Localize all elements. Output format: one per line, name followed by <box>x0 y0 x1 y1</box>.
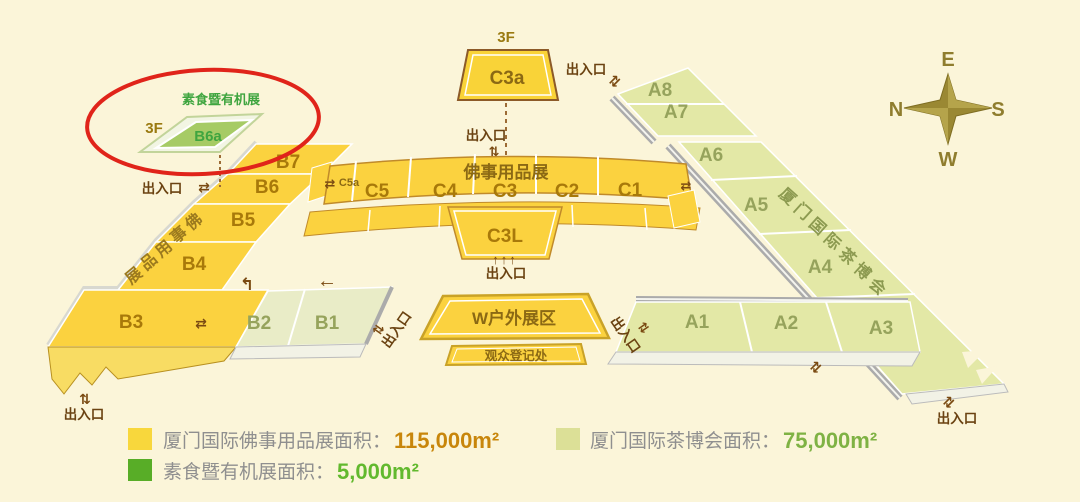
c-band-header: 佛事用品展 <box>463 162 549 182</box>
hall-label-b3: B3 <box>119 312 143 333</box>
hall-label-a3: A3 <box>869 318 893 339</box>
row-base-3d <box>608 352 920 366</box>
hall-label-b4: B4 <box>182 254 207 275</box>
legend: 厦门国际佛事用品展面积： 115,000m² 厦门国际茶博会面积： 75,000… <box>128 428 877 484</box>
legend-value-tea: 75,000m² <box>783 428 877 453</box>
tea-expo-bottom-row: A1 A2 A3 <box>608 299 920 366</box>
hall-label-b2: B2 <box>247 313 271 334</box>
hall-label-b1: B1 <box>315 313 340 334</box>
hall-label-b6: B6 <box>255 177 279 198</box>
exchange-arrows-icon: ⇄ <box>325 176 336 191</box>
left-arrow-icon: ← <box>317 270 337 292</box>
entrance-label-b6: 出入口 <box>142 180 183 196</box>
hall-label-a6: A6 <box>699 145 723 166</box>
strip-platform-3d <box>48 347 236 394</box>
turn-arrow-icon: ↰ <box>240 275 254 294</box>
hall-label-a4: A4 <box>808 257 833 278</box>
compass-south-label: S <box>991 99 1004 121</box>
exchange-arrows-icon: ⇄ <box>681 178 692 193</box>
hall-label-a7: A7 <box>664 102 688 123</box>
legend-value-buddhist: 115,000m² <box>394 428 499 453</box>
annex-base-3d <box>230 344 366 359</box>
legend-label-tea: 厦门国际茶博会面积： <box>590 430 780 452</box>
c3a-floor-label: 3F <box>497 29 515 46</box>
entrance-label-c3l: 出入口 <box>486 265 527 281</box>
compass-north-label: N <box>889 99 903 121</box>
legend-swatch-tea <box>556 428 580 450</box>
hall-label-a1: A1 <box>685 312 710 333</box>
apron-divider <box>572 205 573 227</box>
legend-label-buddhist: 厦门国际佛事用品展面积： <box>163 430 391 452</box>
legend-value-organic: 5,000m² <box>337 459 419 484</box>
compass-east-label: E <box>941 49 954 71</box>
venue-floorplan: A8 A7 A6 A5 A4 厦门国际茶博会 A1 A2 A3 B7 B6 B5… <box>0 0 1080 502</box>
hall-label-c4: C4 <box>433 181 458 202</box>
registration-label: 观众登记处 <box>485 348 548 363</box>
organic-expo-label: 素食暨有机展 <box>182 92 261 107</box>
hall-label-a8: A8 <box>648 80 672 101</box>
legend-swatch-buddhist <box>128 428 152 450</box>
c-complex: 佛事用品展 C5 C4 C3 C2 C1 C3L C5a <box>304 154 700 259</box>
diagonal-arrows-icon: ⇅ <box>605 71 625 91</box>
legend-swatch-organic <box>128 459 152 481</box>
exchange-arrows-icon: ⇄ <box>195 315 207 331</box>
exchange-arrows-icon: ⇄ <box>198 179 210 195</box>
updown-arrows-icon: ⇅ <box>79 391 91 407</box>
legend-label-organic: 素食暨有机展面积： <box>163 461 334 483</box>
hall-label-c5a: C5a <box>339 177 360 189</box>
outdoor-zone: W户外展区 观众登记处 <box>421 294 609 365</box>
hall-label-c3l: C3L <box>487 226 523 247</box>
hall-label-b6a: B6a <box>194 128 222 145</box>
apron-divider <box>439 206 440 228</box>
b6a-floor-label: 3F <box>145 120 163 137</box>
hall-label-b5: B5 <box>231 210 256 231</box>
entrance-label-a8: 出入口 <box>566 61 607 77</box>
hall-label-a2: A2 <box>774 313 798 334</box>
updown-arrows-icon: ⇅ <box>489 144 500 159</box>
triple-up-arrows-icon: ↑↑↑ <box>492 252 518 267</box>
compass-west-label: W <box>939 149 958 171</box>
hall-label-c1: C1 <box>618 180 643 201</box>
connector-c1-a6 <box>668 190 700 228</box>
compass-rose: E N S W <box>889 49 1005 171</box>
hall-label-c2: C2 <box>555 181 579 202</box>
entrance-label-b3: 出入口 <box>64 406 105 422</box>
entrance-label-c3a: 出入口 <box>466 127 507 143</box>
w-outdoor-label: W户外展区 <box>472 308 556 328</box>
entrance-label-a3: 出入口 <box>937 410 978 426</box>
hall-label-c3: C3 <box>493 181 517 202</box>
hall-label-c3a: C3a <box>490 68 525 89</box>
floorplan-svg: A8 A7 A6 A5 A4 厦门国际茶博会 A1 A2 A3 B7 B6 B5… <box>0 0 1080 502</box>
hall-block-b3 <box>48 290 268 347</box>
hall-label-c5: C5 <box>365 181 390 202</box>
hall-label-a5: A5 <box>744 195 769 216</box>
